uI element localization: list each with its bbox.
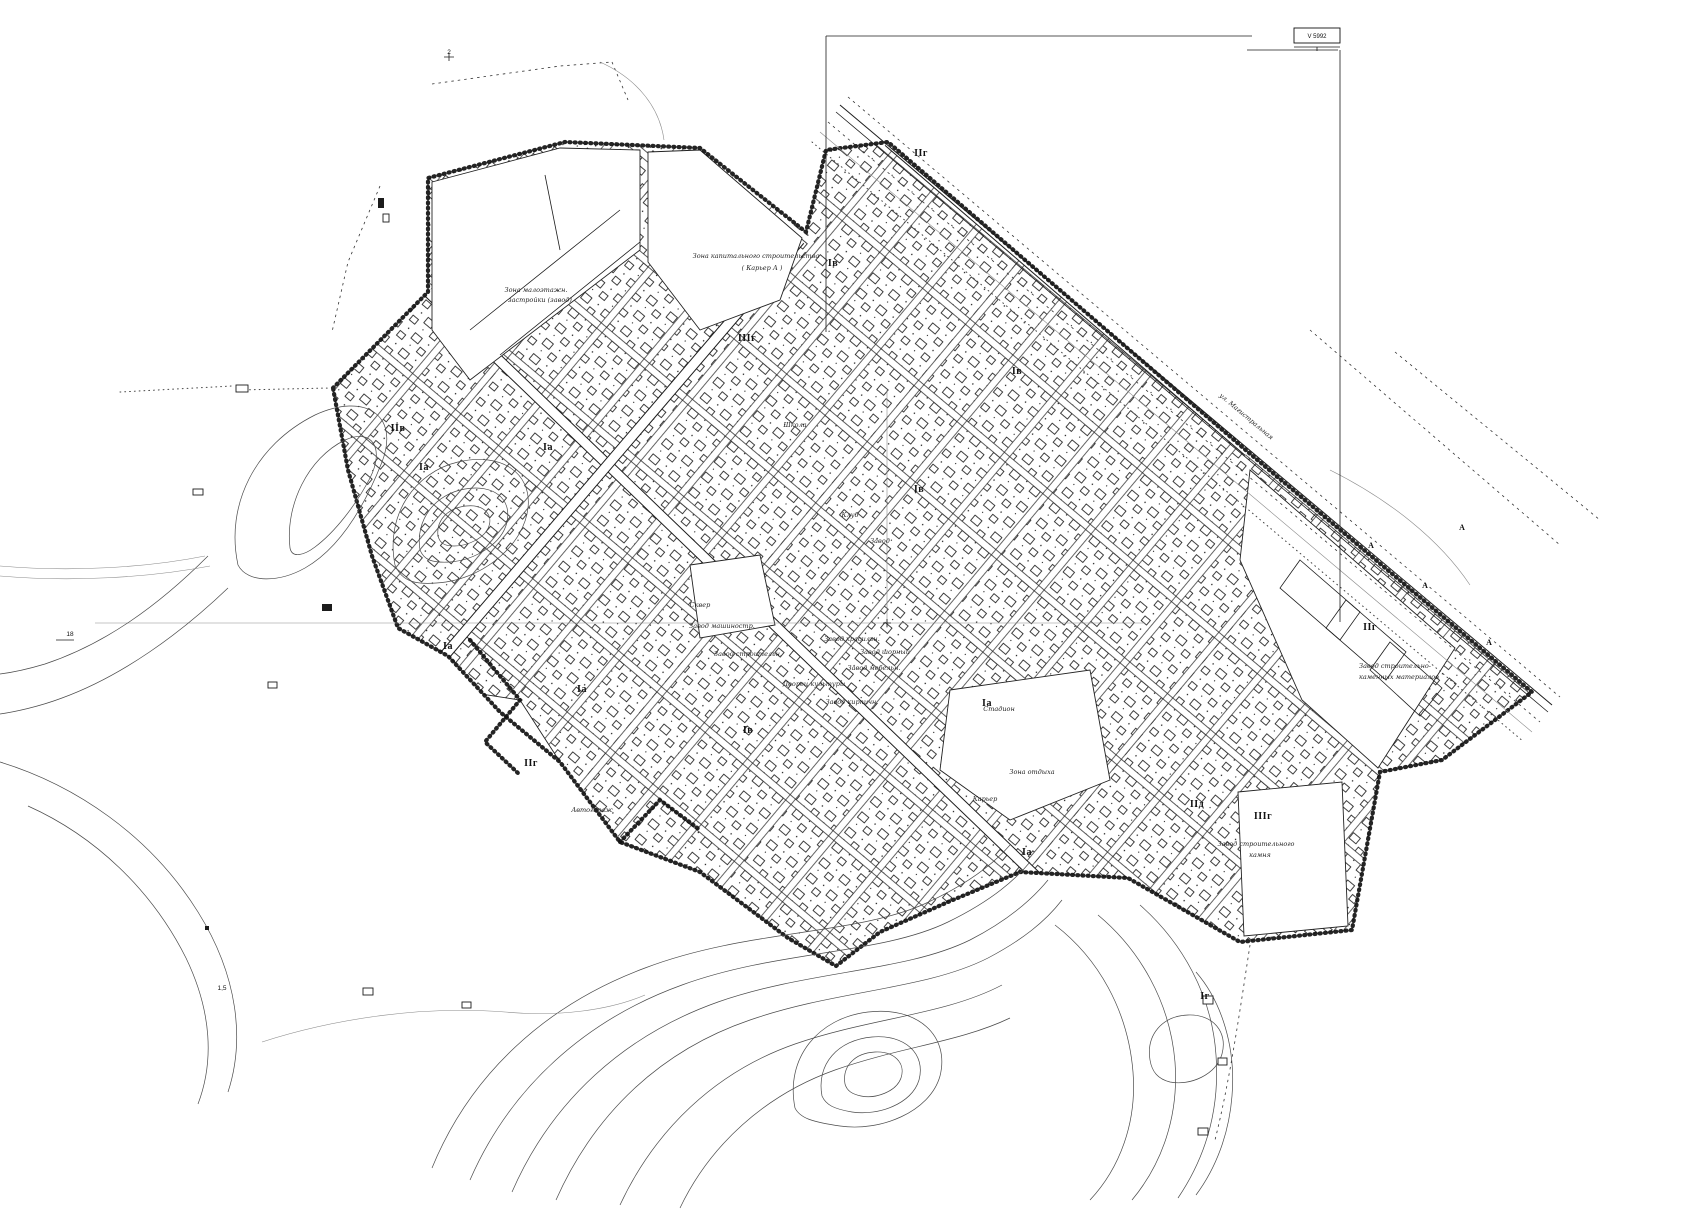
zone-label: Iв bbox=[828, 258, 838, 269]
zone-label: Iв bbox=[743, 725, 753, 736]
annotation-label: Завод кирпичн. bbox=[826, 698, 879, 706]
tick-label: 2 bbox=[447, 49, 451, 56]
annotation-label: Завод красильн. bbox=[824, 635, 880, 643]
zone-label: Iа bbox=[543, 442, 553, 453]
annotation-label: Завод строительно- bbox=[1359, 662, 1431, 670]
annotation-label: Стадион bbox=[983, 705, 1015, 713]
zone-label: Iг bbox=[1200, 991, 1209, 1002]
city-plan-map: V 5992 bbox=[0, 0, 1685, 1211]
annotation-label: Завод шорный bbox=[860, 648, 910, 656]
zone-label: Iа bbox=[443, 641, 453, 652]
mark-label: А bbox=[1486, 638, 1492, 647]
zone-label: IIIг bbox=[1254, 811, 1272, 822]
annotation-label: Зона отдыха bbox=[1009, 768, 1054, 776]
zone-label: Iа bbox=[419, 462, 429, 473]
mark-label: А bbox=[1368, 541, 1374, 550]
annotation-label: Зона малоэтажн. bbox=[505, 286, 568, 294]
zone-label: Iа bbox=[1022, 847, 1032, 858]
mark-label: А bbox=[1459, 523, 1465, 532]
map-sheet: V 5992 bbox=[0, 0, 1685, 1211]
annotation-label: Завод строительн. bbox=[714, 650, 782, 658]
annotation-label: Завод строительного bbox=[1218, 840, 1295, 848]
zone-label: IIг bbox=[1363, 622, 1377, 633]
tick-label: 18 bbox=[66, 631, 74, 638]
zone-label: IIIг bbox=[738, 333, 756, 344]
scale-box: V 5992 bbox=[1294, 28, 1340, 51]
annotation-label: застройки (завод) bbox=[508, 296, 572, 304]
annotation-label: каменных материалов bbox=[1359, 673, 1439, 681]
annotation-label: ( Карьер А ) bbox=[742, 264, 783, 272]
scale-box-label: V 5992 bbox=[1307, 34, 1327, 40]
zone-label: Iа bbox=[577, 684, 587, 695]
annotation-label: Клуб bbox=[841, 511, 859, 519]
tick-label: 1,5 bbox=[217, 985, 226, 992]
zone-label: Iв bbox=[914, 484, 924, 495]
annotation-label: Сквер bbox=[690, 601, 711, 609]
annotation-label: Зона капитального строительства bbox=[693, 252, 820, 260]
annotation-label: Завод bbox=[870, 537, 890, 545]
annotation-label: Карьер bbox=[972, 795, 998, 803]
annotation-label: Автогараж bbox=[570, 806, 613, 814]
annotation-label: камня bbox=[1249, 851, 1271, 859]
annotation-label: Школа bbox=[782, 421, 806, 429]
annotation-label: Завод мебельн. bbox=[848, 664, 901, 672]
annotation-label: Дворец культуры bbox=[782, 680, 845, 688]
zone-label: IIд bbox=[1190, 799, 1204, 810]
mark-label: А bbox=[1422, 581, 1428, 590]
zone-label: IIв bbox=[391, 423, 406, 434]
annotation-label: Завод машиностр. bbox=[689, 622, 755, 630]
zone-label: Iв bbox=[1012, 366, 1022, 377]
zone-label: IIг bbox=[524, 758, 538, 769]
zone-label: IIг bbox=[914, 148, 928, 159]
